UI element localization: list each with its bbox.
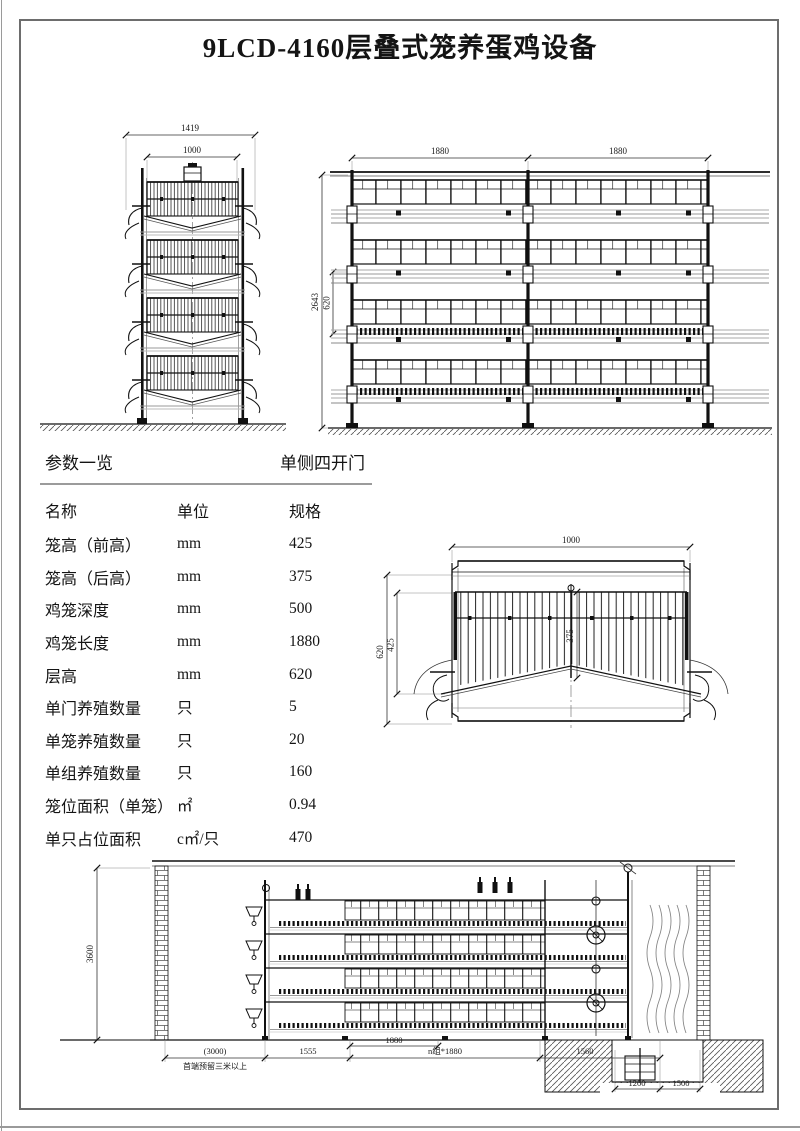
params-title: 参数一览 bbox=[45, 449, 113, 474]
param-value: 375 bbox=[289, 568, 365, 586]
param-name: 笼高（后高） bbox=[45, 565, 177, 589]
param-name: 单门养殖数量 bbox=[45, 695, 177, 719]
dim-cage-width: 1000 bbox=[562, 535, 581, 545]
param-unit: mm bbox=[177, 666, 289, 684]
params-variant: 单侧四开门 bbox=[280, 449, 365, 474]
drawing-sheet: 9LCD-4160层叠式笼养蛋鸡设备 bbox=[0, 0, 800, 1131]
dim-overall-height: 2643 bbox=[310, 293, 320, 312]
param-name: 笼高（前高） bbox=[45, 532, 177, 556]
front-view-structure bbox=[330, 170, 770, 428]
cage-battery-section bbox=[246, 862, 636, 1040]
table-row: 笼高（后高） mm 375 bbox=[45, 561, 365, 594]
foot bbox=[702, 423, 714, 428]
param-value: 20 bbox=[289, 731, 365, 749]
dim-tier-pitch: 620 bbox=[375, 645, 385, 659]
parameters-panel: 参数一览 单侧四开门 名称 单位 规格 笼高（前高） mm 425 笼高（后高）… bbox=[45, 449, 365, 854]
param-unit: 只 bbox=[177, 761, 289, 783]
col-name: 名称 bbox=[45, 498, 177, 522]
dim-rear-section: 1560 bbox=[577, 1046, 594, 1056]
installation-drawing: 3600 bbox=[60, 861, 763, 1095]
foot bbox=[137, 418, 147, 424]
param-value: 425 bbox=[289, 535, 365, 553]
param-name: 层高 bbox=[45, 663, 177, 687]
table-row: 鸡笼长度 mm 1880 bbox=[45, 626, 365, 659]
param-unit: mm bbox=[177, 568, 289, 586]
foot bbox=[346, 423, 358, 428]
dim-pit-ledge: 1500 bbox=[673, 1078, 690, 1088]
param-name: 单笼养殖数量 bbox=[45, 728, 177, 752]
table-header-row: 名称 单位 规格 bbox=[45, 495, 365, 525]
param-unit: mm bbox=[177, 600, 289, 618]
dim-bay1: 1880 bbox=[431, 146, 450, 156]
param-name: 笼位面积（单笼） bbox=[45, 793, 177, 817]
param-unit: mm bbox=[177, 633, 289, 651]
left-wall bbox=[155, 866, 168, 1040]
table-row: 单组养殖数量 只 160 bbox=[45, 756, 365, 789]
dim-house-height: 3600 bbox=[85, 945, 95, 964]
side-view-drawing: 1419 1000 bbox=[40, 123, 286, 431]
table-row: 笼高（前高） mm 425 bbox=[45, 528, 365, 561]
table-row: 笼位面积（单笼） ㎡ 0.94 bbox=[45, 789, 365, 822]
param-name: 鸡笼长度 bbox=[45, 630, 177, 654]
table-row: 层高 mm 620 bbox=[45, 658, 365, 691]
param-value: 5 bbox=[289, 698, 365, 716]
param-unit: c㎡/只 bbox=[177, 827, 289, 849]
dim-pit-width: 1200 bbox=[629, 1078, 646, 1088]
dim-bay2: 1880 bbox=[609, 146, 628, 156]
param-name: 单组养殖数量 bbox=[45, 760, 177, 784]
cage-detail-drawing: 1000 620 425 375 bbox=[375, 535, 728, 728]
dim-head-clearance: (3000) bbox=[204, 1046, 227, 1056]
foot bbox=[238, 418, 248, 424]
right-wall bbox=[697, 866, 710, 1040]
head-clearance-note: 首端预留三米以上 bbox=[183, 1061, 247, 1071]
params-table: 名称 单位 规格 笼高（前高） mm 425 笼高（后高） mm 375 鸡笼深… bbox=[45, 495, 365, 854]
param-unit: mm bbox=[177, 535, 289, 553]
param-unit: ㎡ bbox=[177, 794, 289, 816]
dim-inner-width: 1000 bbox=[183, 145, 202, 155]
table-row: 鸡笼深度 mm 500 bbox=[45, 593, 365, 626]
house-height-dimension: 3600 bbox=[85, 865, 150, 1043]
param-value: 620 bbox=[289, 666, 365, 684]
table-row: 单只占位面积 c㎡/只 470 bbox=[45, 821, 365, 854]
col-unit: 单位 bbox=[177, 498, 289, 522]
foot bbox=[522, 423, 534, 428]
param-name: 单只占位面积 bbox=[45, 826, 177, 850]
param-value: 0.94 bbox=[289, 796, 365, 814]
side-view-structure bbox=[125, 163, 260, 424]
ground-line bbox=[328, 428, 772, 435]
param-value: 160 bbox=[289, 763, 365, 781]
param-value: 500 bbox=[289, 600, 365, 618]
dim-front-section: 1555 bbox=[300, 1046, 317, 1056]
dim-front-height: 425 bbox=[386, 638, 396, 652]
dim-overall-width: 1419 bbox=[181, 123, 200, 133]
col-spec: 规格 bbox=[289, 498, 365, 522]
param-name: 鸡笼深度 bbox=[45, 597, 177, 621]
curtain bbox=[647, 905, 689, 1033]
front-view-drawing: 1880 1880 2643 620 bbox=[310, 146, 772, 435]
table-row: 单门养殖数量 只 5 bbox=[45, 691, 365, 724]
table-row: 单笼养殖数量 只 20 bbox=[45, 724, 365, 757]
dim-tier-pitch: 620 bbox=[322, 296, 332, 310]
dim-bay-run: n组*1880 bbox=[428, 1046, 462, 1056]
header-divider bbox=[40, 483, 372, 485]
param-value: 470 bbox=[289, 829, 365, 847]
parameters-header: 参数一览 单侧四开门 bbox=[45, 449, 365, 474]
ground-line bbox=[40, 424, 286, 431]
param-unit: 只 bbox=[177, 696, 289, 718]
param-value: 1880 bbox=[289, 633, 365, 651]
dim-bay-width: 1880 bbox=[386, 1035, 403, 1045]
param-unit: 只 bbox=[177, 729, 289, 751]
